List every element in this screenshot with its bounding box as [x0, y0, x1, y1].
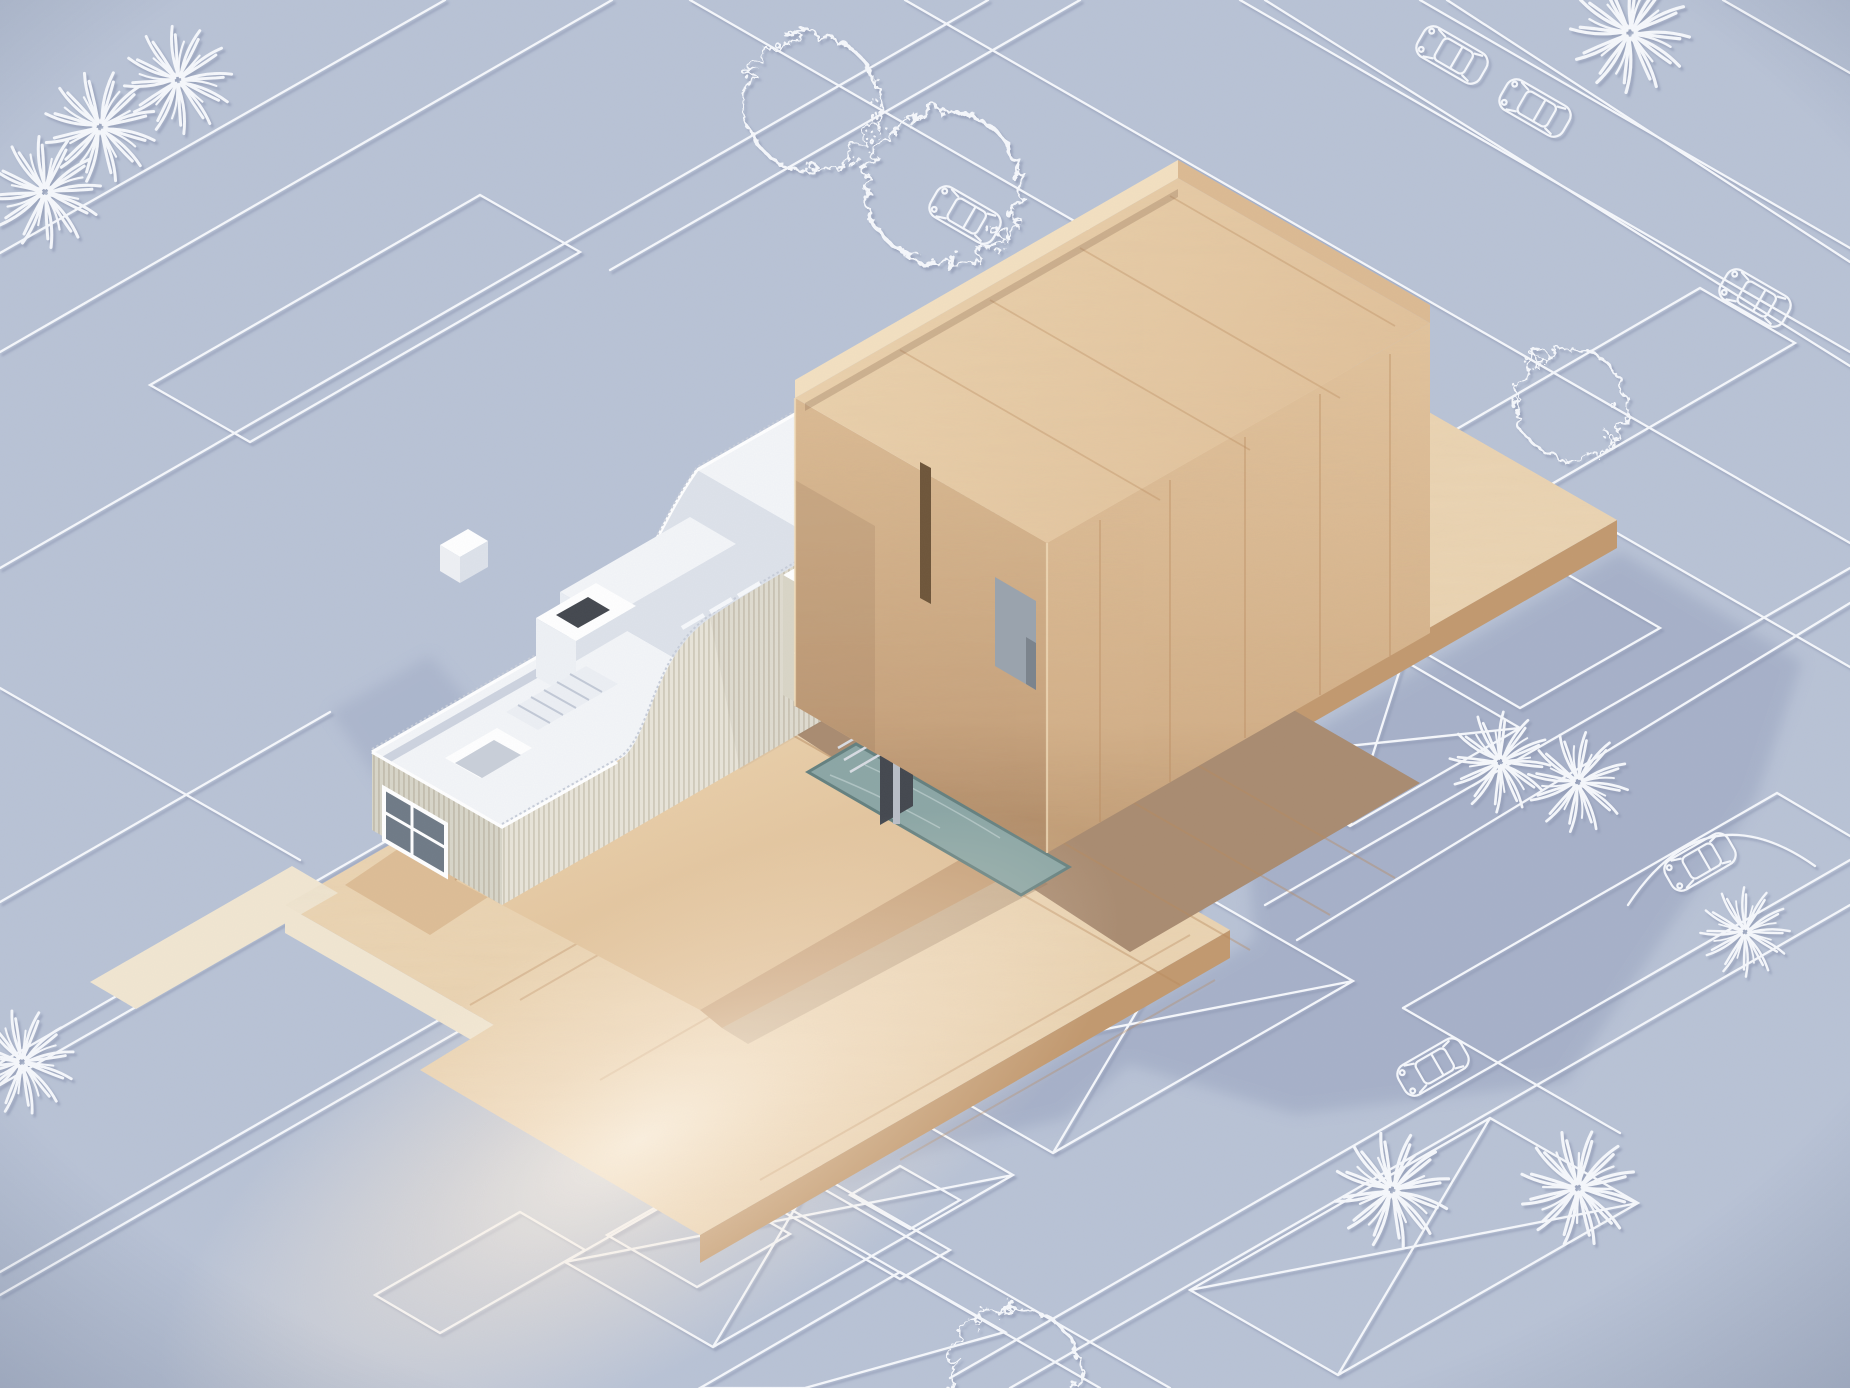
render-viewport: [0, 0, 1850, 1388]
vignette-overlay: [0, 0, 1850, 1388]
site-model-scene: [0, 0, 1850, 1388]
